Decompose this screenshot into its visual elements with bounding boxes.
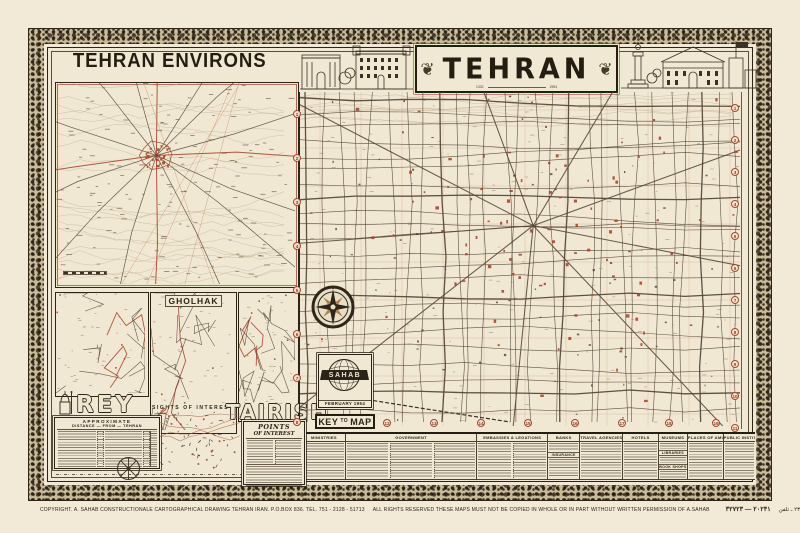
banner-year-right: 1954 xyxy=(550,85,558,89)
legend-col-amusement: PLACES OF AMUSEMENT xyxy=(687,434,723,479)
rey-label: REY xyxy=(76,392,135,418)
map-sheet: TEHRAN ENVIRONS GHOLHAK REY SIGHTS OF IN… xyxy=(0,0,800,533)
serial-numerals: ۳۲۷۲۳ — ۲۰۲۴۱ xyxy=(726,505,771,513)
rights-text: ALL RIGHTS RESERVED THESE MAPS MUST NOT … xyxy=(373,507,710,513)
legend-col-hotels: HOTELS xyxy=(622,434,658,479)
environs-title: TEHRAN ENVIRONS xyxy=(60,50,279,73)
grid-index-number: 19 xyxy=(712,419,720,427)
publisher-logo-text: SAHAB xyxy=(319,372,371,379)
legend-col-embassies: EMBASSIES & LEGATIONS xyxy=(476,434,547,479)
map-date: FEBRUARY 1954 xyxy=(319,400,371,407)
legend-col-ministries: MINISTRIES xyxy=(303,434,345,479)
copyright-text: COPYRIGHT. A. SAHAB CONSTRUCTIONALE CART… xyxy=(40,507,365,513)
city-title: TEHRAN xyxy=(443,53,591,86)
grid-index-number: 18 xyxy=(665,419,673,427)
grid-index-number: 10 xyxy=(731,392,739,400)
grid-index-number: 8 xyxy=(731,328,739,336)
buildings-engraving-left xyxy=(300,42,413,92)
grid-index-number: 17 xyxy=(618,419,626,427)
grid-index-number: 16 xyxy=(571,419,579,427)
legend-col-travel: TRAVEL AGENCIES xyxy=(579,434,622,479)
poi-subtitle: OF INTEREST xyxy=(246,431,302,439)
scale-bar xyxy=(64,272,106,274)
wheel-ornament-icon xyxy=(116,456,141,481)
grid-index-number: 13 xyxy=(430,419,438,427)
grid-index-number: 9 xyxy=(731,360,739,368)
grid-index-number: 15 xyxy=(524,419,532,427)
grid-index-number: 6 xyxy=(293,330,301,338)
banner-year-left: 1332 xyxy=(476,85,484,89)
sights-pictorial-map xyxy=(160,412,242,470)
grid-index-number: 14 xyxy=(477,419,485,427)
grid-index-number: 4 xyxy=(731,200,739,208)
map-word: MAP xyxy=(350,417,372,427)
foliage-ornament-right: ❦ xyxy=(598,61,612,78)
legend-col-government: GOVERNMENT xyxy=(345,434,477,479)
grid-index-number: 3 xyxy=(293,198,301,206)
grid-index-number: 4 xyxy=(293,242,301,250)
grid-index-number: 2 xyxy=(293,154,301,162)
grid-index-number: 8 xyxy=(293,418,301,426)
inset-map-west xyxy=(55,292,149,397)
key-to-map-label: KEY TO MAP xyxy=(315,414,375,429)
grid-index-number: 3 xyxy=(731,168,739,176)
grid-index-number: 12 xyxy=(383,419,391,427)
grid-index-number: 6 xyxy=(731,264,739,272)
grid-index-number: 5 xyxy=(731,232,739,240)
city-title-banner: ❦ TEHRAN ❦ 1332 1954 xyxy=(415,45,618,93)
imprint-line: COPYRIGHT. A. SAHAB CONSTRUCTIONALE CART… xyxy=(40,505,762,513)
points-of-interest-box: POINTS OF INTEREST xyxy=(243,421,305,485)
grid-index-number: 11 xyxy=(731,424,739,432)
distance-table: APPROXIMATE DISTANCE — FROM — TEHRAN xyxy=(54,417,160,469)
legend-table: MINISTRIES GOVERNMENT EMBASSIES & LEGATI… xyxy=(303,432,755,480)
to-word: TO xyxy=(340,418,348,424)
poi-rows xyxy=(246,440,302,465)
grid-index-number: 1 xyxy=(731,104,739,112)
grid-index-number: 7 xyxy=(731,296,739,304)
grid-index-number: 5 xyxy=(293,286,301,294)
legend-col-institutions: PUBLIC INSTITUTIONS xyxy=(723,434,755,479)
environs-map-canvas xyxy=(55,82,299,288)
key-word: KEY xyxy=(318,417,338,427)
distance-table-rows xyxy=(57,431,157,467)
persian-address: نشانی: تهران ـ صندوق پستی ۲۳۵ ـ تلفن xyxy=(779,507,800,513)
banner-flourish: 1332 1954 xyxy=(417,85,616,89)
poi-rows-2 xyxy=(246,466,302,486)
publisher-logo-box: SAHAB FEBRUARY 1954 xyxy=(318,354,372,408)
distance-table-subtitle: DISTANCE — FROM — TEHRAN xyxy=(57,424,157,430)
gholhak-label: GHOLHAK xyxy=(165,295,223,307)
legend-col-museums: MUSEUMS LIBRARIES BOOK SHOPS xyxy=(658,434,687,479)
foliage-ornament-left: ❦ xyxy=(420,61,434,78)
legend-col-banks: BANKS INSURANCE xyxy=(547,434,579,479)
grid-index-number: 7 xyxy=(293,374,301,382)
buildings-engraving-right xyxy=(621,38,757,92)
compass-rose-icon xyxy=(311,285,355,329)
mosque-icon xyxy=(57,390,73,416)
grid-index-number: 2 xyxy=(731,136,739,144)
grid-index-number: 1 xyxy=(293,110,301,118)
